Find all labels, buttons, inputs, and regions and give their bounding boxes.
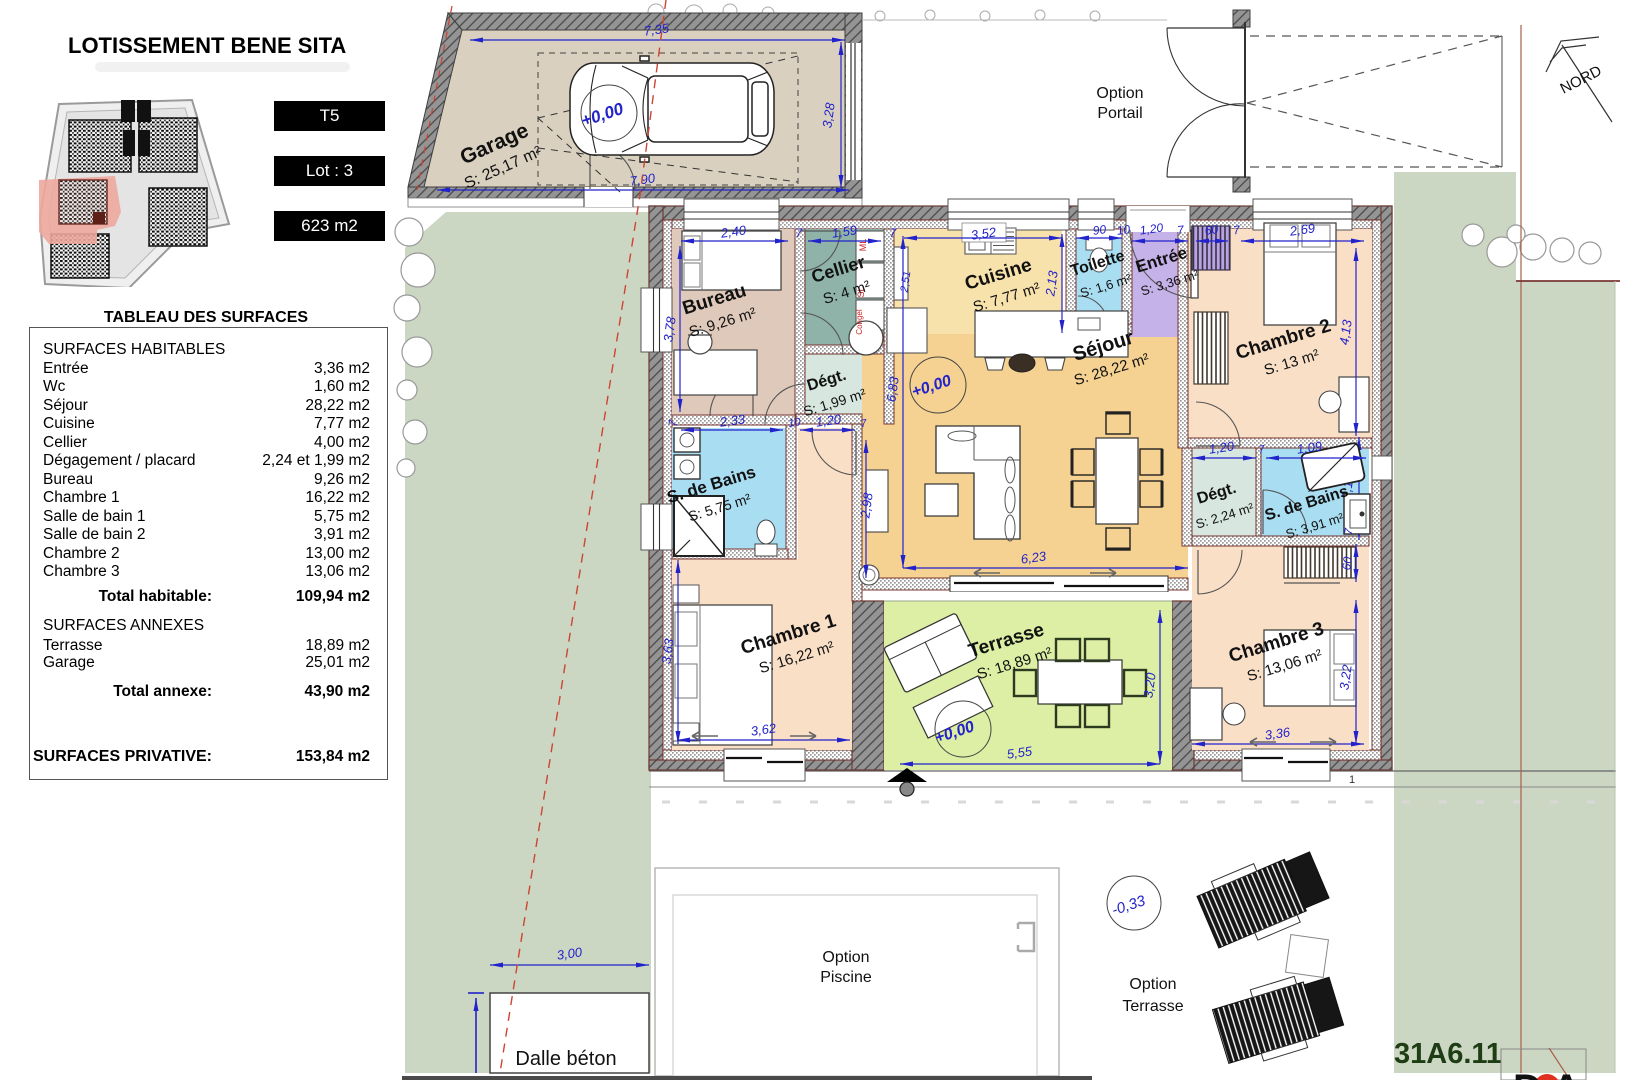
svg-text:Option: Option — [822, 949, 869, 966]
svg-text:Piscine: Piscine — [820, 969, 872, 986]
svg-text:Portail: Portail — [1097, 105, 1142, 122]
svg-text:2,33: 2,33 — [718, 411, 747, 430]
svg-text:90: 90 — [1092, 222, 1107, 238]
svg-text:D: D — [1513, 1067, 1542, 1080]
svg-text:10: 10 — [1116, 222, 1131, 238]
svg-text:Option: Option — [1129, 976, 1176, 993]
svg-text:31A6.11: 31A6.11 — [1394, 1038, 1502, 1070]
svg-text:60: 60 — [1204, 222, 1219, 238]
svg-text:Terrasse: Terrasse — [1122, 998, 1183, 1015]
svg-text:60: 60 — [1339, 556, 1355, 571]
svg-text:A: A — [1552, 1067, 1581, 1080]
svg-text:Congel: Congel — [855, 309, 864, 335]
svg-text:1: 1 — [1349, 774, 1355, 786]
svg-text:Dalle béton: Dalle béton — [515, 1048, 616, 1070]
svg-text:NORD: NORD — [1557, 62, 1604, 97]
svg-text:1,20: 1,20 — [815, 411, 843, 429]
svg-text:Option: Option — [1096, 85, 1143, 102]
